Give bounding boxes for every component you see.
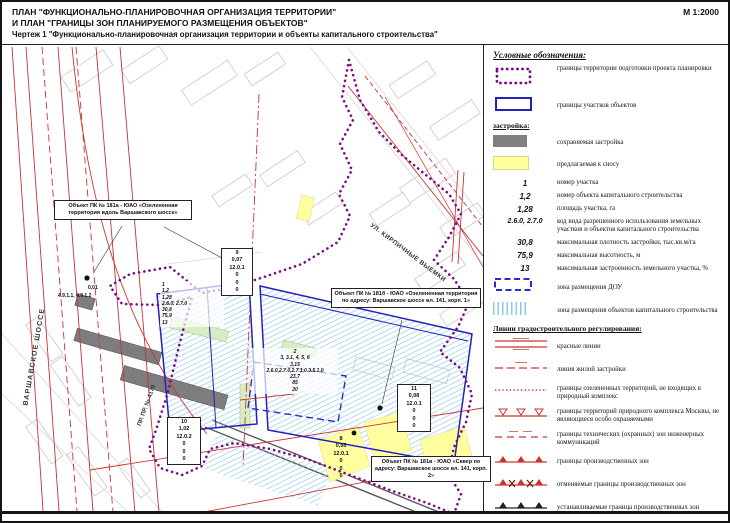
legend-symbol-demolish	[493, 156, 557, 175]
parcel-2-parameters: 2 3, 3.1, 4, 5, 6 3,15 2.6.0,2.7.0,2.7.1…	[252, 348, 338, 394]
legend-sample-obj-no: 1,2	[493, 192, 557, 201]
legend-label: границы производственных зон	[557, 458, 649, 466]
legend-heading: Условные обозначения:	[493, 50, 728, 60]
legend-label: границы участков объектов	[557, 102, 636, 110]
value-line: 0,08	[398, 393, 430, 400]
legend-symbol-industrial-established	[493, 498, 557, 511]
legend-sample-height: 75,9	[493, 251, 557, 260]
note-area: 0,01	[88, 285, 98, 291]
value-line: 9	[222, 250, 252, 257]
value-line: 0	[168, 449, 200, 456]
parcel-1-parameters: 1 1,2 1,28 2.6.0, 2.7.0 30,8 75,9 13	[160, 281, 224, 327]
legend-label: площадь участка, га	[557, 205, 615, 213]
legend-label: предлагаемая к сносу	[557, 161, 619, 169]
callout-object-181b: Объект ПК № 181б - ЮАО «Озелененная терр…	[331, 288, 481, 308]
plot-box-10: 10 1,02 12.0.2 0 0 0	[167, 417, 201, 465]
street-proezd-label: ПР. ПР. № 4179	[136, 383, 158, 427]
value-line: 0	[222, 280, 252, 287]
street-kirpichnye-label: УЛ. КИРПИЧНЫЕ ВЫЕМКИ	[369, 222, 447, 283]
legend-sample-density: 30,8	[493, 238, 557, 247]
value-line: 0	[398, 416, 430, 423]
value-line: 0,55	[328, 443, 354, 450]
legend-sample-plot-no: 1	[493, 179, 557, 188]
title-line-1: ПЛАН "ФУНКЦИОНАЛЬНО-ПЛАНИРОВОЧНАЯ ОРГАНИ…	[12, 7, 482, 18]
legend-label: зона размещения объектов капитального ст…	[557, 307, 718, 315]
legend-symbol-parcel-boundary	[493, 96, 557, 117]
value-line: 0	[398, 408, 430, 415]
legend-symbol-residential-line	[493, 360, 557, 379]
legend-label: максимальная застроенность земельного уч…	[557, 265, 708, 273]
legend-label: зона размещения ДОУ	[557, 284, 622, 292]
legend-label: код вида разрешенного использования земе…	[557, 218, 728, 234]
legend-label: номер участка	[557, 179, 598, 187]
value-line: 0	[168, 456, 200, 463]
legend-sample-built: 13	[493, 264, 557, 273]
legend-symbol-industrial-boundary	[493, 452, 557, 471]
legend-subheading-zastroyka: застройка:	[493, 121, 728, 130]
legend-symbol-industrial-cancelled	[493, 475, 557, 494]
legend-label: максимальная высотность, м	[557, 252, 640, 260]
value-line: 13	[162, 320, 222, 326]
callout-object-181a: Объект ПК № 181а - ЮАО «Озелененная терр…	[54, 200, 192, 220]
bottom-border	[2, 511, 728, 514]
legend-label: отменяемые границы производственных зон	[557, 481, 686, 489]
scale-label: М 1:2000	[683, 7, 719, 17]
value-line: 12.0.1	[222, 265, 252, 272]
legend-sample-area: 1,28	[493, 205, 557, 214]
value-line: 11	[398, 386, 430, 393]
value-line: 10	[168, 419, 200, 426]
plan-sheet: ПЛАН "ФУНКЦИОНАЛЬНО-ПЛАНИРОВОЧНАЯ ОРГАНИ…	[0, 0, 730, 523]
title-block: ПЛАН "ФУНКЦИОНАЛЬНО-ПЛАНИРОВОЧНАЯ ОРГАНИ…	[12, 7, 482, 40]
legend-symbol-dou-zone	[493, 277, 557, 298]
legend-symbol-red-lines	[493, 337, 557, 356]
note-codes: 4.9.1.1, 4.9.1.2	[58, 293, 91, 299]
legend-sample-code: 2.6.0, 2.7.0	[493, 218, 557, 225]
title-line-3: Чертеж 1 "Функционально-планировочная ор…	[12, 30, 482, 40]
legend-label: границы территорий природного комплекса …	[557, 408, 728, 424]
value-line: 20	[254, 387, 336, 393]
value-line: 1,02	[168, 426, 200, 433]
legend-symbol-nature-boundary	[493, 406, 557, 425]
value-line: 0	[328, 473, 354, 480]
value-line: 12.0.1	[398, 401, 430, 408]
value-line: 12.0.1	[328, 451, 354, 458]
value-line: 12.0.2	[168, 434, 200, 441]
legend-label: красные линии	[557, 343, 601, 351]
value-line: 0	[222, 287, 252, 294]
legend-symbol-oks-zone	[493, 302, 557, 320]
legend-symbol-tech-zones	[493, 429, 557, 448]
legend-label: границы технических (охранных) зон инжен…	[557, 431, 728, 447]
legend-label: сохраняемая застройка	[557, 139, 623, 147]
legend-symbol-retained	[493, 134, 557, 152]
legend-label: номер объекта капитального строительства	[557, 192, 682, 200]
value-line: 0	[328, 466, 354, 473]
value-line: 0	[328, 458, 354, 465]
callout-object-181v: Объект ПК № 181в - ЮАО «Сквер по адресу:…	[371, 456, 491, 482]
legend-symbol-green-boundary	[493, 383, 557, 402]
value-line: 0	[168, 441, 200, 448]
title-line-2: И ПЛАН "ГРАНИЦЫ ЗОН ПЛАНИРУЕМОГО РАЗМЕЩЕ…	[12, 18, 482, 29]
value-line: 0,07	[222, 257, 252, 264]
legend-label: линия жилой застройки	[557, 366, 626, 374]
legend-panel: Условные обозначения: границы территории…	[485, 45, 730, 511]
value-line: 8	[328, 436, 354, 443]
plot-box-8: 8 0,55 12.0.1 0 0 0	[328, 435, 354, 481]
value-line: 0	[398, 423, 430, 430]
plot-box-11: 11 0,08 12.0.1 0 0 0	[397, 384, 431, 432]
value-line: 0	[222, 272, 252, 279]
legend-subheading-lines: Линии градостроительного регулирования:	[493, 324, 728, 333]
legend-symbol-project-boundary	[493, 65, 557, 92]
legend-label: границы территории подготовки проекта пл…	[557, 65, 712, 73]
legend-label: максимальная плотность застройки, тыс.кв…	[557, 239, 696, 247]
legend-label: границы озелененных территорий, не входя…	[557, 385, 728, 401]
plot-box-9: 9 0,07 12.0.1 0 0 0	[221, 248, 253, 296]
legend-divider	[483, 44, 484, 513]
legend-label: устанавливаемые граница производственных…	[557, 504, 699, 511]
